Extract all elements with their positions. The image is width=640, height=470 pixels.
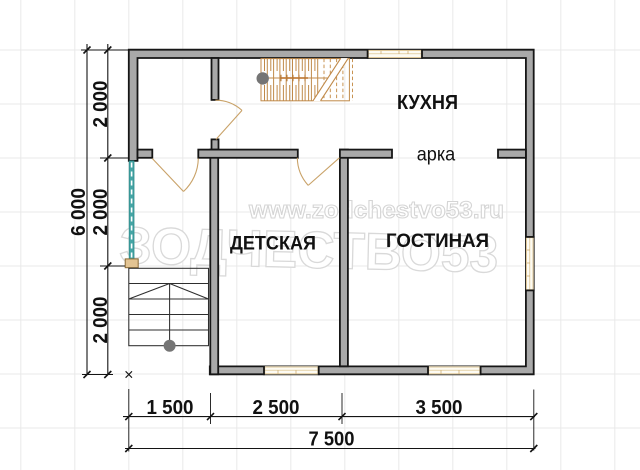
svg-text:7 500: 7 500 [309,427,355,450]
svg-text:2 000: 2 000 [89,297,112,344]
svg-text:ДЕТСКАЯ: ДЕТСКАЯ [230,233,316,254]
svg-text:1 500: 1 500 [147,396,194,419]
svg-text:КУХНЯ: КУХНЯ [397,91,458,114]
svg-text:3 500: 3 500 [416,396,463,419]
svg-text:2 000: 2 000 [89,80,112,127]
svg-text:6 000: 6 000 [67,188,90,236]
svg-text:ГОСТИНАЯ: ГОСТИНАЯ [386,231,489,252]
svg-text:2 000: 2 000 [89,189,112,236]
svg-text:арка: арка [417,144,456,165]
svg-text:www.zodchestvo53.ru: www.zodchestvo53.ru [248,197,504,224]
svg-text:2 500: 2 500 [253,396,300,419]
